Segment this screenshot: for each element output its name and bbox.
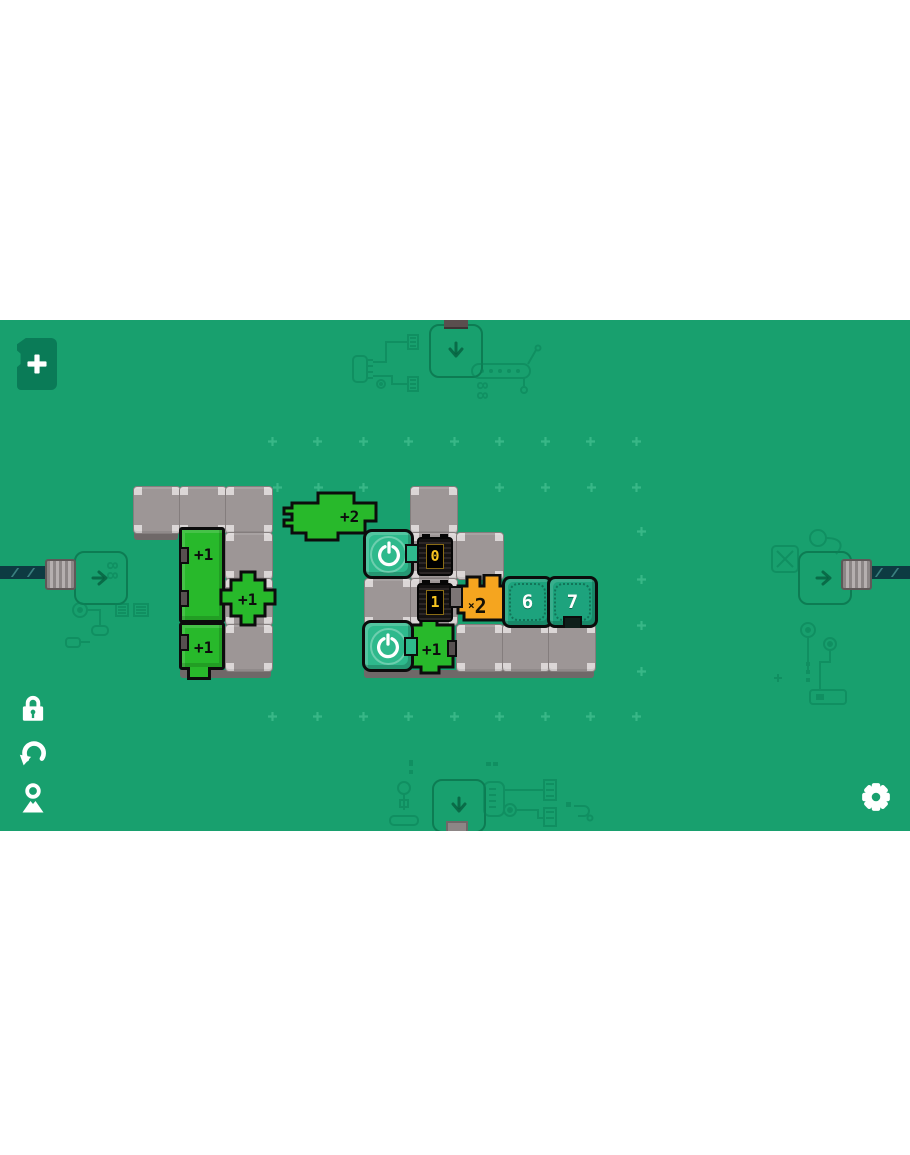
board-tile <box>456 624 504 672</box>
circuit-decor-bottom-right <box>482 758 622 831</box>
grid-sparkle <box>541 437 550 446</box>
grid-sparkle <box>541 712 550 721</box>
counter-display: 0 <box>417 537 453 576</box>
piece-socket-notch <box>447 640 457 657</box>
gear-icon <box>860 781 892 813</box>
letterbox-top <box>0 0 910 320</box>
grid-sparkle <box>268 712 277 721</box>
grid-sparkle <box>637 621 646 630</box>
letterbox-bottom <box>0 831 910 1155</box>
piece-socket-notch <box>179 590 189 607</box>
grid-sparkle <box>637 575 646 584</box>
grid-sparkle <box>359 712 368 721</box>
board-tile <box>364 578 412 626</box>
piece-label: +1 <box>194 640 213 656</box>
grid-sparkle <box>450 712 459 721</box>
board-tile <box>502 624 550 672</box>
grid-sparkle <box>495 712 504 721</box>
grid-sparkle <box>632 437 641 446</box>
number-tile-6: 6 <box>502 576 553 628</box>
grid-sparkle <box>637 667 646 676</box>
grid-sparkle <box>632 712 641 721</box>
board-tile <box>548 624 596 672</box>
grid-sparkle <box>273 483 282 492</box>
grid-sparkle <box>404 712 413 721</box>
grid-sparkle <box>359 437 368 446</box>
add-level-card[interactable] <box>17 338 57 390</box>
grid-sparkle <box>586 712 595 721</box>
settings-button[interactable] <box>860 781 892 817</box>
cable-left <box>0 566 48 579</box>
top-connector-tab <box>444 320 468 329</box>
arrow-down-icon <box>448 795 470 817</box>
multiplier-label: ×2 <box>468 596 487 616</box>
piece-label: +2 <box>340 509 359 525</box>
circuit-decor-left <box>56 588 156 658</box>
grid-sparkle <box>313 437 322 446</box>
board-tile <box>225 486 273 534</box>
grid-sparkle <box>268 437 277 446</box>
grid-sparkle <box>586 437 595 446</box>
display-88-left: 88 <box>103 561 121 581</box>
power-tab <box>405 544 419 563</box>
piece-plus1-foot[interactable]: +1 <box>179 622 225 670</box>
pin-icon <box>18 781 48 815</box>
power-tab <box>404 637 418 656</box>
app-frame: 88 88 <box>0 0 910 1155</box>
grid-sparkle <box>632 483 641 492</box>
number-tile-7: 7 <box>547 576 598 628</box>
grid-sparkle <box>404 437 413 446</box>
grid-sparkle <box>450 437 459 446</box>
grid-sparkle <box>637 527 646 536</box>
board-tile <box>133 486 181 534</box>
piece-label: +1 <box>238 592 257 608</box>
piece-socket-notch <box>179 547 189 564</box>
piece-label: +1 <box>422 642 441 658</box>
multiplier-socket-stub <box>449 586 463 608</box>
piece-label: +1 <box>194 547 213 563</box>
display-88-top: 88 <box>473 381 491 401</box>
counter-digit: 1 <box>426 590 444 615</box>
location-button[interactable] <box>18 781 48 819</box>
lock-icon <box>17 693 49 725</box>
circuit-decor-right <box>768 512 908 712</box>
cable-plug-left <box>45 559 76 590</box>
board-tile <box>225 624 273 672</box>
plus-icon <box>24 351 50 377</box>
tile-bottom-notch <box>563 616 582 628</box>
board-tile <box>410 486 458 534</box>
grid-sparkle <box>495 437 504 446</box>
number-tile-digit: 7 <box>567 591 578 613</box>
counter-display: 1 <box>417 583 453 622</box>
grid-sparkle <box>587 483 596 492</box>
number-tile-digit: 6 <box>522 591 533 613</box>
piece-socket-notch <box>179 634 189 651</box>
arrow-down-icon <box>445 340 467 362</box>
power-icon <box>374 539 404 569</box>
circuit-decor-top-left <box>350 326 428 398</box>
circuit-decor-bottom-left <box>386 758 430 831</box>
power-icon <box>373 631 403 661</box>
lock-button[interactable] <box>17 693 49 729</box>
game-stage: 88 88 <box>0 320 910 831</box>
grid-sparkle <box>541 483 550 492</box>
counter-digit: 0 <box>426 544 444 569</box>
bottom-connector-stub <box>446 821 468 831</box>
board-tile <box>456 532 504 580</box>
undo-button[interactable] <box>16 735 50 773</box>
undo-icon <box>16 735 50 769</box>
grid-sparkle <box>495 483 504 492</box>
grid-sparkle <box>313 712 322 721</box>
